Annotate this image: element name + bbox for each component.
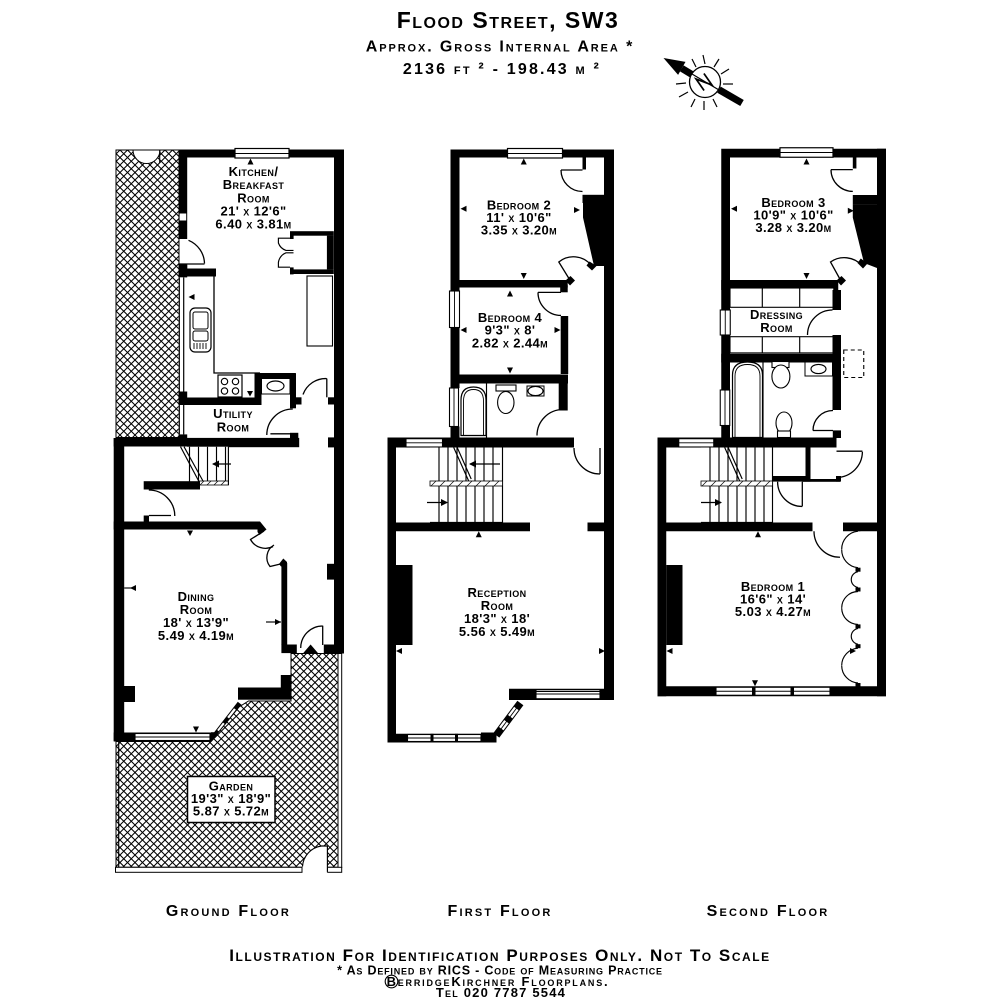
svg-text:2136 ft ² - 198.43 m ²: 2136 ft ² - 198.43 m ² bbox=[403, 61, 601, 78]
svg-text:Ground Floor: Ground Floor bbox=[166, 903, 291, 920]
svg-text:3.35 x 3.20m: 3.35 x 3.20m bbox=[481, 223, 557, 238]
svg-text:First Floor: First Floor bbox=[447, 903, 552, 920]
svg-text:6.40 x 3.81m: 6.40 x 3.81m bbox=[215, 217, 291, 232]
svg-text:Second Floor: Second Floor bbox=[707, 903, 830, 920]
svg-text:3.28 x 3.20m: 3.28 x 3.20m bbox=[755, 220, 831, 235]
svg-text:Room: Room bbox=[760, 320, 793, 335]
svg-text:Room: Room bbox=[217, 420, 250, 435]
svg-text:2.82 x 2.44m: 2.82 x 2.44m bbox=[472, 335, 548, 350]
svg-text:Approx. Gross Internal Area *: Approx. Gross Internal Area * bbox=[366, 39, 634, 56]
svg-text:Flood Street, SW3: Flood Street, SW3 bbox=[397, 7, 620, 33]
svg-text:5.03 x 4.27m: 5.03 x 4.27m bbox=[735, 604, 811, 619]
svg-text:Tel 020 7787 5544: Tel 020 7787 5544 bbox=[436, 985, 566, 1000]
svg-text:5.56 x 5.49m: 5.56 x 5.49m bbox=[459, 624, 535, 639]
svg-text:5.87 x 5.72m: 5.87 x 5.72m bbox=[193, 804, 269, 819]
svg-text:5.49 x 4.19m: 5.49 x 4.19m bbox=[158, 628, 234, 643]
svg-text:Illustration For Identificatio: Illustration For Identification Purposes… bbox=[229, 946, 770, 965]
